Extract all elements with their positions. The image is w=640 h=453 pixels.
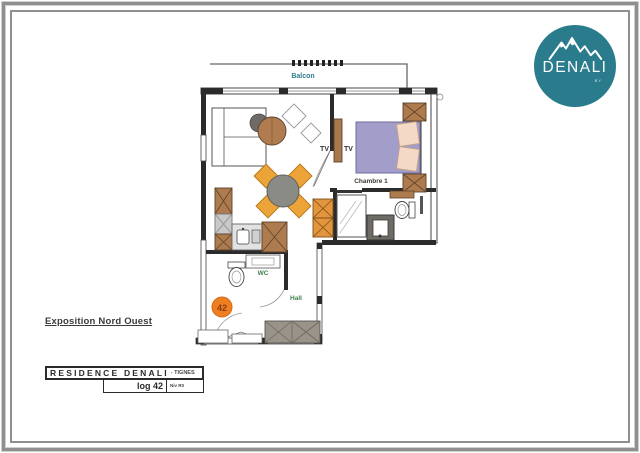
logo-brand-text: DENALI (543, 60, 608, 76)
exposition-note: Exposition Nord Ouest (45, 316, 152, 327)
tv-unit (334, 119, 342, 162)
bedroom-label: Chambre 1 (354, 178, 388, 185)
unit-cell: log 42 (103, 380, 167, 393)
plan-sheet: DENALI BY Balcon (0, 0, 640, 453)
wc-fixtures (228, 255, 280, 287)
bathroom-toilet (395, 202, 415, 219)
residence-location: - TIGNES (171, 370, 195, 376)
storage-cabinet-orange (313, 199, 333, 237)
entrance-closet (198, 321, 320, 343)
dining-set (254, 164, 312, 218)
bathroom-shelf (390, 191, 414, 198)
logo-tagline-text: BY (595, 78, 602, 83)
tv-label-bedroom: TV (344, 146, 353, 153)
mountain-icon (544, 32, 606, 62)
hall-label: Hall (290, 295, 302, 302)
title-block-header: RESIDENCE DENALI - TIGNES (45, 366, 204, 380)
floor-plan: Balcon (188, 55, 450, 353)
denali-logo: DENALI BY (534, 25, 616, 107)
level-cell: Niv R0 (167, 380, 204, 393)
unit-number-text: 42 (217, 303, 227, 313)
bed (356, 121, 421, 174)
vanity-sink (367, 215, 394, 240)
unit-number-badge: 42 (212, 297, 232, 317)
shower (337, 195, 366, 237)
wc-label: WC (258, 270, 269, 277)
tv-label-living: TV (320, 146, 329, 153)
balcony-label: Balcon (291, 73, 314, 80)
residence-name: RESIDENCE DENALI (50, 368, 169, 378)
towel-bar (420, 196, 423, 214)
floor-cushions (282, 104, 321, 143)
title-block-subrow: log 42 Niv R0 (103, 380, 204, 393)
title-block: RESIDENCE DENALI - TIGNES log 42 Niv R0 (45, 366, 204, 393)
